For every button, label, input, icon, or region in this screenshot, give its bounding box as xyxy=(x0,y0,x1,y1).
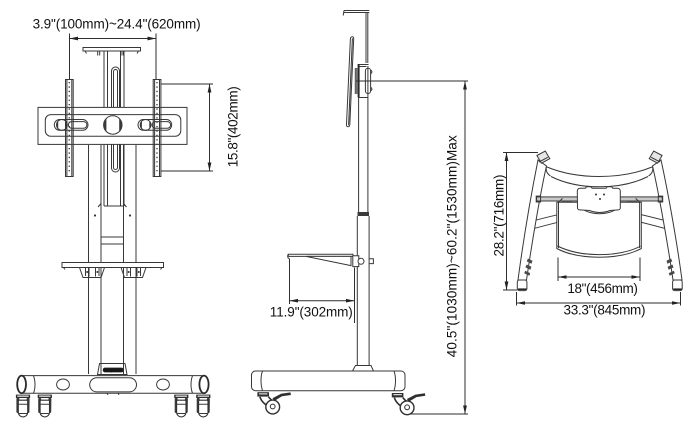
svg-text:3.9"(100mm)~24.4"(620mm): 3.9"(100mm)~24.4"(620mm) xyxy=(33,16,201,31)
svg-text:18"(456mm): 18"(456mm) xyxy=(567,281,638,296)
svg-text:11.9"(302mm): 11.9"(302mm) xyxy=(270,304,353,319)
svg-text:KingBoard: KingBoard xyxy=(104,369,122,373)
svg-text:40.5"(1030mm)~60.2"(1530mm)Max: 40.5"(1030mm)~60.2"(1530mm)Max xyxy=(445,135,460,357)
svg-text:15.8"(402mm): 15.8"(402mm) xyxy=(226,86,241,167)
svg-text:28.2"(716mm): 28.2"(716mm) xyxy=(492,175,507,257)
svg-text:33.3"(845mm): 33.3"(845mm) xyxy=(564,303,646,318)
